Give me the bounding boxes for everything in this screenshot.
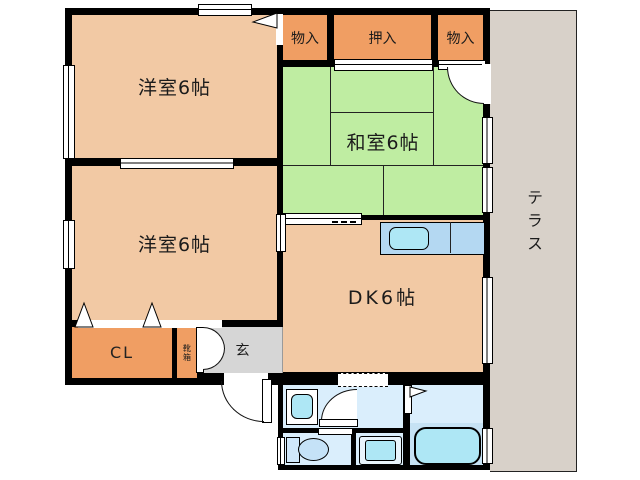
window-left-bedroom1 xyxy=(63,65,75,159)
floor-plan: テラス 洋室6帖 物入 押入 物入 和室6帖 洋室6帖 CL 靴箱 玄 DK6帖 xyxy=(0,0,640,480)
washbasin-bowl-icon xyxy=(291,394,313,419)
sliding-door-oshiire xyxy=(334,59,433,71)
storage-left-label: 物入 xyxy=(291,28,319,48)
room-bedroom1-label: 洋室6帖 xyxy=(138,73,211,100)
kitchen-sink-icon xyxy=(389,227,429,250)
washer-pan-inner-icon xyxy=(365,440,396,461)
door-swing-triangle-icon xyxy=(250,12,280,30)
washroom-door-panel xyxy=(319,419,358,427)
storage-left: 物入 xyxy=(283,15,327,60)
terrace-area: テラス xyxy=(490,10,577,472)
closet-cl: CL xyxy=(72,327,172,378)
window-top xyxy=(198,4,252,16)
terrace-label: テラス xyxy=(490,189,576,258)
window-bath-terrace xyxy=(482,428,493,464)
shoe-box-label: 靴箱 xyxy=(182,344,193,362)
room-tatami-label: 和室6帖 xyxy=(346,128,419,155)
toilet-door-panel xyxy=(318,428,353,435)
tatami-line xyxy=(383,165,384,215)
bath-folding-door-icon xyxy=(409,386,429,400)
entrance-door-arc xyxy=(221,381,264,422)
window-dk-terrace xyxy=(482,277,493,364)
terrace-label-text: テラス xyxy=(521,189,545,258)
room-dining-kitchen-label: DK6帖 xyxy=(348,283,418,310)
window-tatami-terrace-1 xyxy=(482,117,493,164)
window-left-bedroom2 xyxy=(63,220,75,269)
sliding-door-bedrooms xyxy=(120,158,234,169)
tatami-line xyxy=(330,67,331,165)
storage-right-label: 物入 xyxy=(447,28,475,48)
bifold-door-triangle-icon xyxy=(71,300,97,328)
storage-right: 物入 xyxy=(438,15,483,60)
entrance-genkan-label: 玄 xyxy=(236,340,250,360)
room-bedroom2-label: 洋室6帖 xyxy=(138,230,211,257)
window-toilet xyxy=(277,437,285,465)
oshiire-closet: 押入 xyxy=(334,15,431,60)
window-tatami-terrace-2 xyxy=(482,167,493,213)
doorway-dk-washroom xyxy=(338,373,388,387)
toilet-bowl-icon xyxy=(298,438,329,461)
room-bedroom2: 洋室6帖 xyxy=(72,166,277,320)
bifold-door-triangle-icon xyxy=(139,300,165,328)
tatami-line xyxy=(330,112,433,113)
sliding-door-bedroom2-dk xyxy=(276,214,286,252)
shoe-box: 靴箱 xyxy=(177,327,197,378)
closet-cl-label: CL xyxy=(110,343,134,362)
bathtub-icon xyxy=(414,427,481,465)
tatami-line xyxy=(433,67,434,165)
oshiire-label: 押入 xyxy=(369,28,397,48)
sliding-door-dash xyxy=(332,217,356,223)
kitchen-counter-divider xyxy=(450,222,451,253)
room-bedroom1: 洋室6帖 xyxy=(72,15,277,158)
